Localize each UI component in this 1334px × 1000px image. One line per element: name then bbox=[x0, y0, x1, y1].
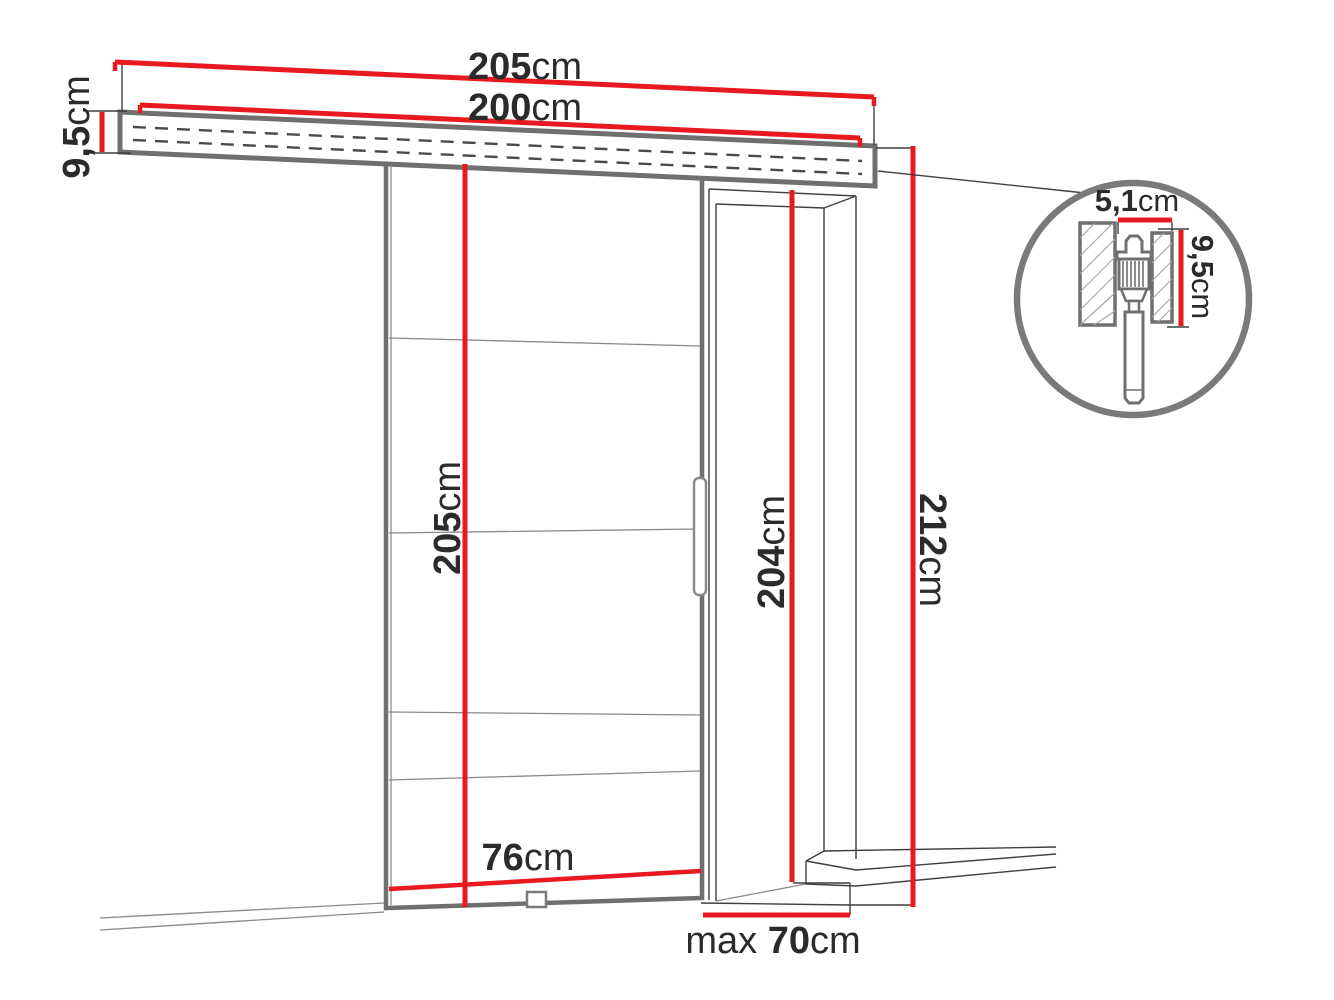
rail-height-label: 9,5cm bbox=[56, 75, 98, 178]
opening-height-label: 204cm bbox=[751, 495, 793, 609]
track-length-label: 205cm bbox=[468, 46, 582, 88]
sliding-door-dimension-diagram: 205cm 200cm 9,5cm 205cm 76cm 204cm 212cm bbox=[0, 0, 1334, 1000]
right-baseboard-and-sill bbox=[806, 847, 1056, 886]
detail-height-label: 9,5cm bbox=[1185, 235, 1220, 319]
door-handle bbox=[694, 478, 706, 595]
detail-callout-line bbox=[878, 171, 1085, 193]
mount-length-label: 200cm bbox=[468, 87, 582, 129]
detail-cover-block bbox=[1152, 233, 1172, 322]
detail-width-label: 5,1cm bbox=[1095, 183, 1179, 218]
max-width-label: max 70cm bbox=[685, 920, 860, 962]
total-height-label: 212cm bbox=[911, 493, 953, 607]
detail-wall-block bbox=[1080, 223, 1115, 325]
door-width-label: 76cm bbox=[482, 837, 575, 879]
track-detail-circle: 5,1cm 9,5cm bbox=[1017, 183, 1249, 415]
total-height-dim: 212cm bbox=[793, 146, 953, 915]
left-baseboard bbox=[100, 903, 384, 930]
floor-guide bbox=[527, 892, 546, 907]
opening-height-dim: 204cm bbox=[751, 190, 793, 882]
max-width-dim: max 70cm bbox=[685, 903, 860, 962]
door-height-label: 205cm bbox=[427, 461, 469, 575]
